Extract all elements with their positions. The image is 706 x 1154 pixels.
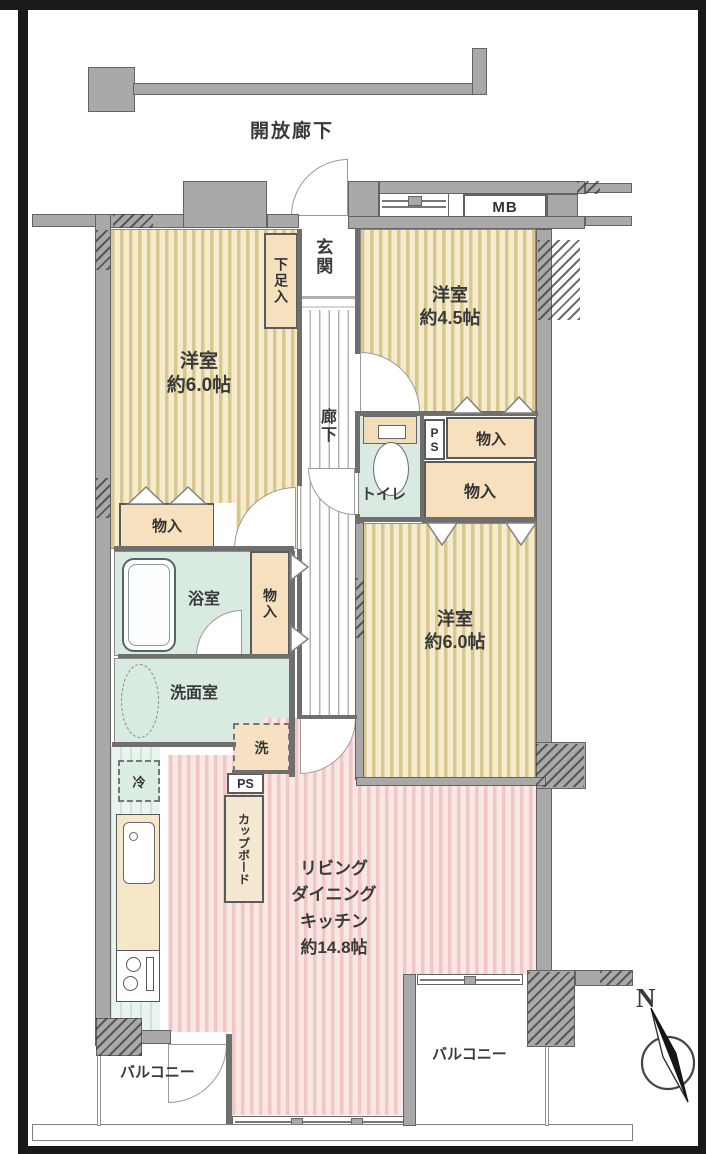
floor-plan: 開放廊下 下足入 物入 物入 物入 物入 PS PS カップボード 洗 冷 <box>0 0 706 1154</box>
open-corridor-end <box>472 48 487 95</box>
frame-bottom <box>18 1146 706 1154</box>
washroom-label: 洗面室 <box>170 684 218 704</box>
frame-left <box>18 0 28 1154</box>
open-corridor-label: 開放廊下 <box>250 120 334 144</box>
storage-a-label: 物入 <box>476 428 506 449</box>
wall-hatch <box>96 1018 142 1056</box>
wall <box>420 415 424 520</box>
entrance-step <box>300 296 355 299</box>
wall <box>355 514 360 524</box>
balcony-left-label: バルコニー <box>120 1064 195 1083</box>
cupboard-label: カップボード <box>236 813 253 885</box>
filler <box>214 503 236 549</box>
open-corridor-bar <box>133 83 473 95</box>
wall <box>297 549 302 719</box>
shoe-cabinet-label: 下足入 <box>271 257 291 305</box>
wall <box>226 1034 232 1124</box>
cupboard: カップボード <box>224 795 264 903</box>
wall <box>355 522 364 780</box>
refrigerator: 冷 <box>118 760 160 802</box>
window-ldk-east <box>417 974 523 985</box>
stove-grill <box>146 957 154 991</box>
storage-a: 物入 <box>446 417 536 459</box>
pipe-space-1-label: PS <box>428 426 442 454</box>
pipe-space-2-label: PS <box>237 777 254 791</box>
window-top-right <box>379 193 449 217</box>
pipe-space-1: PS <box>424 419 445 460</box>
meter-box-label: MB <box>492 199 517 216</box>
wall <box>379 181 585 194</box>
toilet-tank <box>363 416 417 444</box>
refrigerator-label: 冷 <box>132 772 145 791</box>
entrance-step2 <box>300 306 355 308</box>
hallway-label: 廊下 <box>316 408 336 444</box>
storage-b-label: 物入 <box>464 478 496 502</box>
entrance-label: 玄関 <box>312 238 333 276</box>
wall-hatch <box>577 181 600 194</box>
wall <box>118 654 290 658</box>
wall <box>289 551 295 659</box>
wall <box>358 517 422 522</box>
wall <box>355 411 360 473</box>
storage-left: 物入 <box>119 503 215 548</box>
wall <box>112 742 236 747</box>
bedroom-left-label: 洋室約6.0帖 <box>135 350 263 398</box>
wall <box>267 214 299 228</box>
kitchen-sink <box>123 822 155 884</box>
entrance-door <box>291 159 348 216</box>
wall-hatch <box>113 214 153 228</box>
bedroom-top-right-label: 洋室約4.5帖 <box>398 284 502 329</box>
open-corridor-block <box>88 67 135 112</box>
wall-hatch <box>96 230 110 270</box>
wall <box>114 546 294 551</box>
wall-hatch <box>356 578 364 638</box>
washing-machine-label: 洗 <box>255 738 269 758</box>
storage-left-label: 物入 <box>152 515 182 536</box>
frame-right <box>698 0 706 1154</box>
wall <box>289 659 295 777</box>
ldk-label: リビングダイニングキッチン約14.8帖 <box>272 856 396 961</box>
wall <box>297 715 357 719</box>
bedroom-bottom-right-label: 洋室約6.0帖 <box>400 608 510 653</box>
toilet-label: トイレ <box>361 486 406 505</box>
wall-hatch <box>536 744 584 787</box>
wall-hatch <box>538 240 580 320</box>
balcony-right-fence <box>545 1044 549 1126</box>
storage-vertical: 物入 <box>250 551 290 657</box>
balcony-right-label: バルコニー <box>432 1046 507 1065</box>
wall <box>358 411 538 416</box>
balcony-slab-edge <box>32 1124 633 1141</box>
storage-vertical-label: 物入 <box>260 588 280 620</box>
wall <box>183 181 267 228</box>
wall <box>355 229 360 354</box>
bathtub <box>122 558 176 652</box>
wall <box>403 974 416 1126</box>
wall <box>95 214 111 1046</box>
wall-hatch <box>96 478 110 518</box>
wall <box>585 216 632 226</box>
wall <box>348 216 585 229</box>
pipe-space-2: PS <box>227 773 264 794</box>
balcony-left-fence <box>97 1044 101 1126</box>
bathroom-label: 浴室 <box>188 590 220 610</box>
wall <box>422 517 536 523</box>
wall <box>356 777 546 786</box>
shoe-cabinet: 下足入 <box>264 233 298 329</box>
stove-burner-1 <box>126 957 141 972</box>
wall <box>297 229 302 486</box>
wall <box>32 214 96 227</box>
compass-north-label: N <box>636 982 656 1016</box>
kitchen-faucet <box>129 832 138 841</box>
wall-hatch <box>600 971 632 985</box>
washing-machine: 洗 <box>233 723 290 772</box>
compass-icon <box>642 1008 694 1102</box>
wall <box>536 229 552 986</box>
storage-b: 物入 <box>424 461 536 519</box>
wall <box>232 770 292 774</box>
washroom-sink <box>121 664 159 738</box>
stove-burner-2 <box>123 976 138 991</box>
frame-top <box>0 0 706 10</box>
wall-hatch <box>528 972 574 1045</box>
